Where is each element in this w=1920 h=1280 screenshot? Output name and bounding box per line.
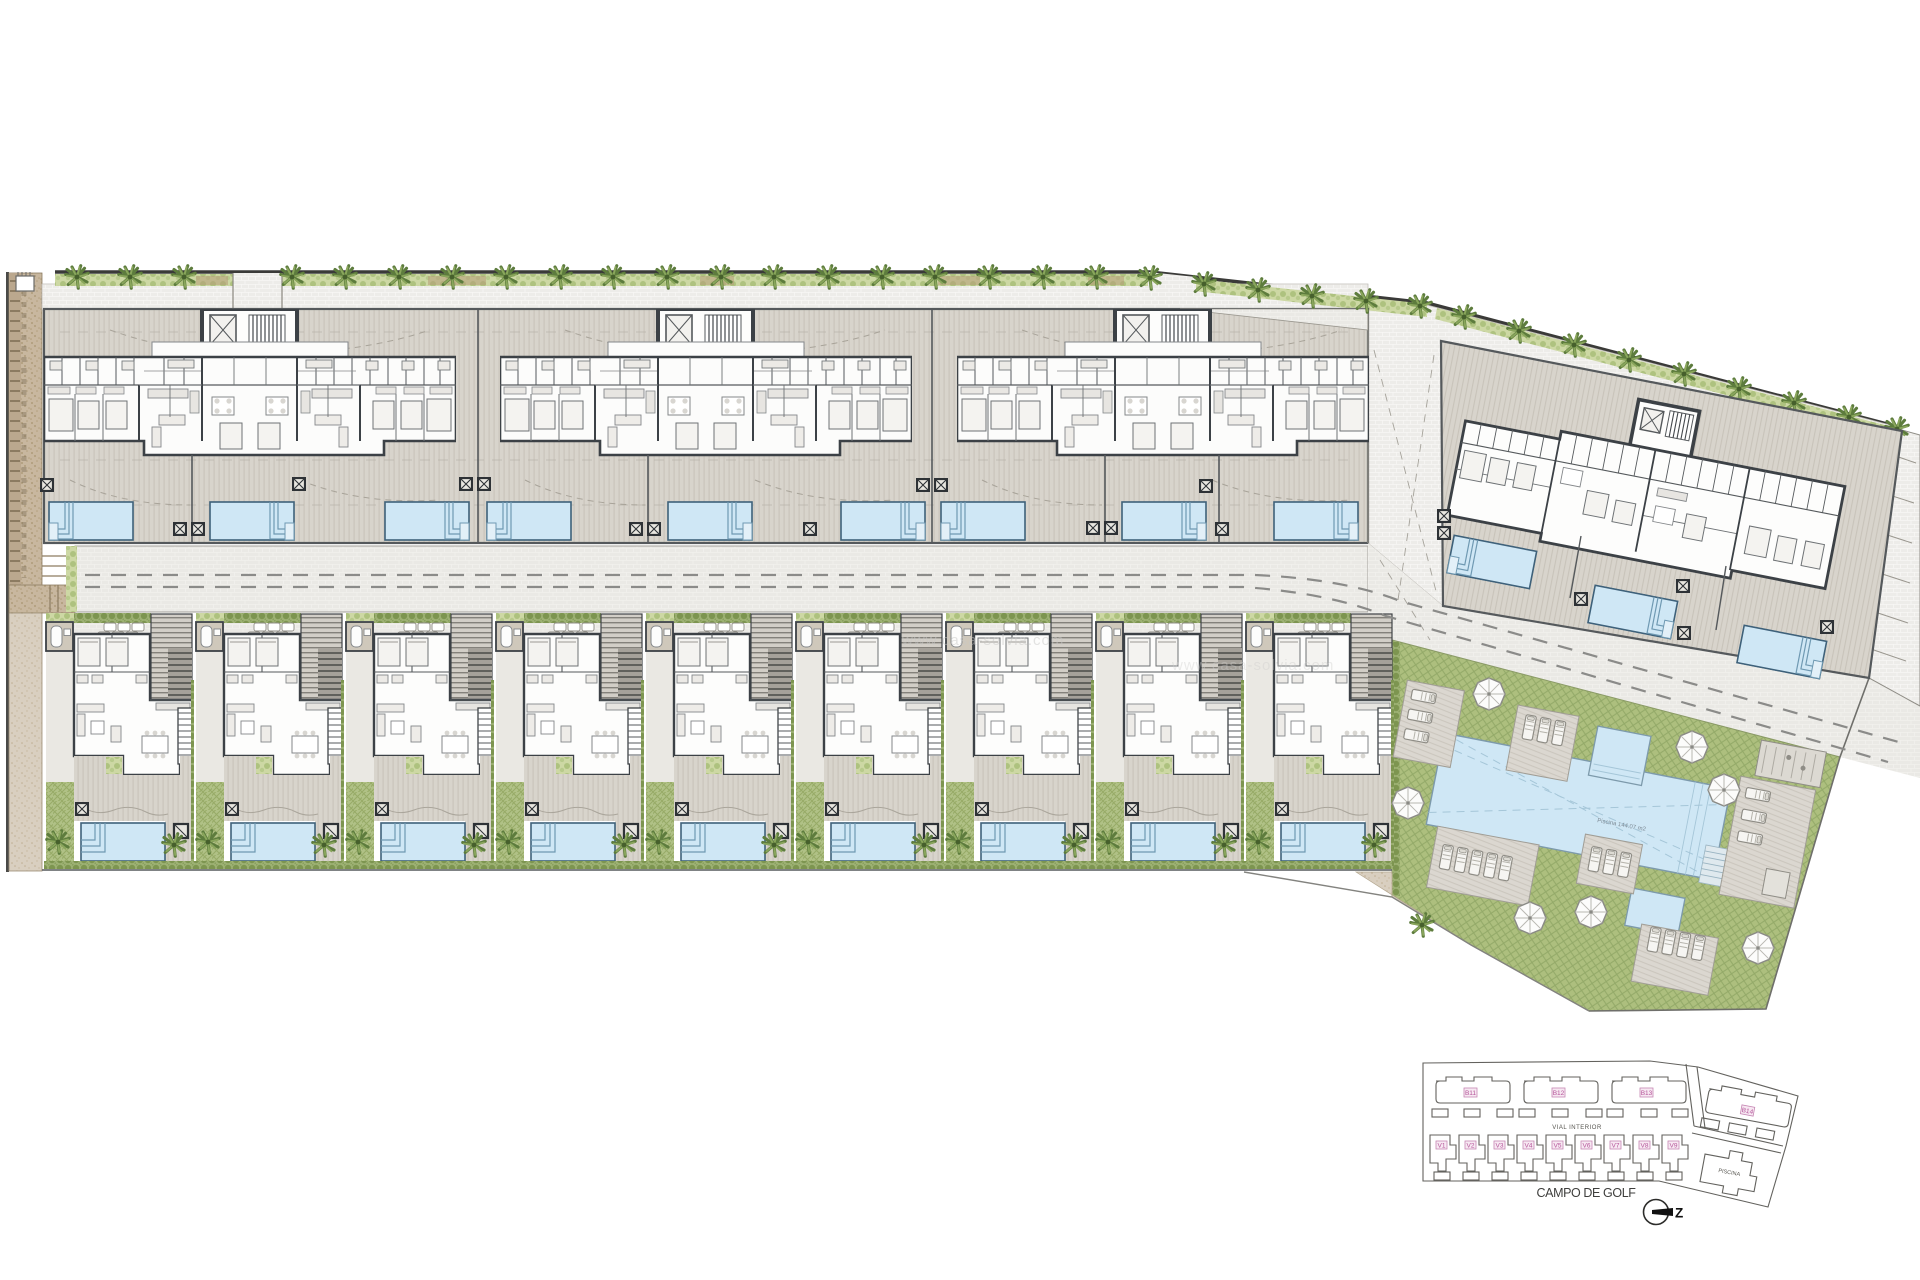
svg-text:B11: B11 — [1465, 1090, 1476, 1097]
svg-text:V2: V2 — [1467, 1143, 1475, 1150]
svg-text:www.casa-solvia.com: www.casa-solvia.com — [901, 632, 1064, 649]
svg-text:B12: B12 — [1553, 1090, 1565, 1097]
svg-text:V1: V1 — [1438, 1143, 1446, 1150]
svg-text:www.casa-solvia.com: www.casa-solvia.com — [1171, 657, 1334, 674]
svg-text:V7: V7 — [1612, 1143, 1620, 1150]
svg-text:B13: B13 — [1641, 1090, 1653, 1097]
svg-text:V3: V3 — [1496, 1143, 1504, 1150]
svg-text:V6: V6 — [1583, 1143, 1591, 1150]
svg-text:V5: V5 — [1554, 1143, 1562, 1150]
svg-text:CAMPO DE GOLF: CAMPO DE GOLF — [1537, 1186, 1637, 1200]
svg-text:VIAL INTERIOR: VIAL INTERIOR — [1552, 1125, 1602, 1131]
svg-text:V4: V4 — [1525, 1143, 1533, 1150]
svg-text:V8: V8 — [1641, 1143, 1649, 1150]
svg-text:V9: V9 — [1670, 1143, 1678, 1150]
svg-text:Z: Z — [1675, 1206, 1683, 1221]
